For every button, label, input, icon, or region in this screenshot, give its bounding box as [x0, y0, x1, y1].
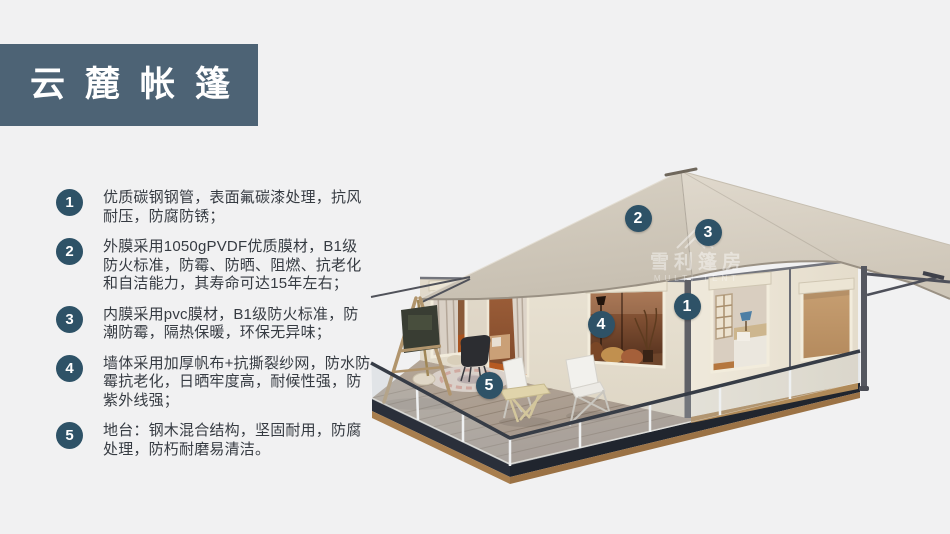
- feature-item-2: 2外膜采用1050gPVDF优质膜材，B1级防火标准，防霉、防晒、阻燃、抗老化和…: [56, 238, 374, 294]
- tent-illustration: 雪利篷房 MULTI TENT 12345: [360, 150, 950, 534]
- feature-number-badge: 4: [56, 355, 83, 382]
- feature-number-badge: 5: [56, 422, 83, 449]
- awning-pole: [861, 266, 867, 387]
- feature-number-badge: 2: [56, 238, 83, 265]
- right-window-tan: [799, 278, 854, 360]
- feature-text: 地台：钢木混合结构，坚固耐用，防腐处理，防朽耐磨易清洁。: [103, 422, 371, 459]
- watermark-en: MULTI TENT: [654, 274, 740, 283]
- feature-number-badge: 3: [56, 306, 83, 333]
- feature-list: 1优质碳钢钢管，表面氟碳漆处理，抗风耐压，防腐防锈；2外膜采用1050gPVDF…: [56, 189, 374, 471]
- feature-text: 外膜采用1050gPVDF优质膜材，B1级防火标准，防霉、防晒、阻燃、抗老化和自…: [103, 238, 371, 294]
- feature-item-4: 4墙体采用加厚帆布+抗撕裂纱网，防水防霉抗老化，日晒牢度高，耐候性强，防紫外线强…: [56, 355, 374, 411]
- page-title: 云麓帐篷: [0, 44, 258, 126]
- feature-text: 内膜采用pvc膜材，B1级防火标准，防潮防霉，隔热保暖，环保无异味；: [103, 306, 371, 343]
- image-callout-4: 4: [588, 311, 615, 338]
- watermark-cn: 雪利篷房: [650, 250, 746, 273]
- image-callout-5: 5: [476, 372, 503, 399]
- feature-text: 墙体采用加厚帆布+抗撕裂纱网，防水防霉抗老化，日晒牢度高，耐候性强，防紫外线强；: [103, 355, 371, 411]
- title-banner: 云麓帐篷: [0, 44, 258, 126]
- image-callout-3: 3: [695, 219, 722, 246]
- feature-item-3: 3内膜采用pvc膜材，B1级防火标准，防潮防霉，隔热保暖，环保无异味；: [56, 306, 374, 343]
- feature-item-1: 1优质碳钢钢管，表面氟碳漆处理，抗风耐压，防腐防锈；: [56, 189, 374, 226]
- feature-number-badge: 1: [56, 189, 83, 216]
- tent-render: 雪利篷房 MULTI TENT: [360, 150, 950, 534]
- right-window-bedroom: [709, 272, 771, 376]
- pouf: [413, 373, 435, 385]
- page: 云麓帐篷 1优质碳钢钢管，表面氟碳漆处理，抗风耐压，防腐防锈；2外膜采用1050…: [0, 0, 950, 534]
- image-callout-1: 1: [674, 293, 701, 320]
- feature-item-5: 5地台：钢木混合结构，坚固耐用，防腐处理，防朽耐磨易清洁。: [56, 422, 374, 459]
- image-callout-2: 2: [625, 205, 652, 232]
- feature-text: 优质碳钢钢管，表面氟碳漆处理，抗风耐压，防腐防锈；: [103, 189, 371, 226]
